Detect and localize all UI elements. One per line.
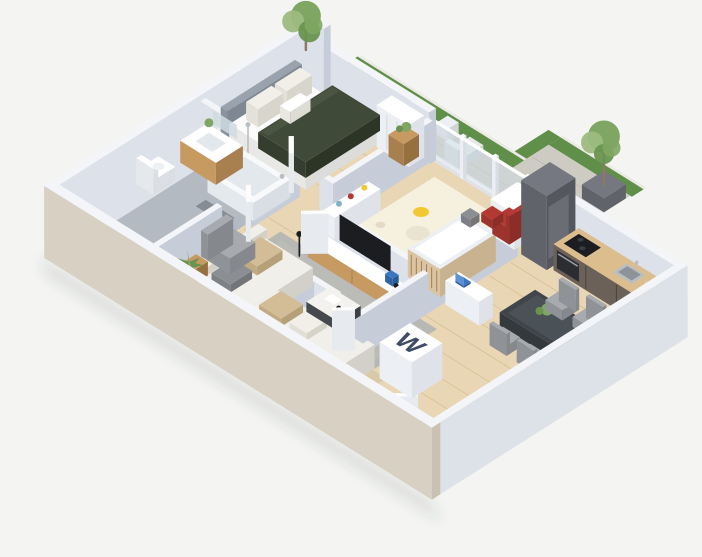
floor-plan-stage: W	[0, 0, 702, 557]
floor-plan-3d-render: W	[0, 0, 702, 557]
bedroom-door	[289, 136, 294, 193]
bathroom-door	[246, 185, 251, 242]
kids-room-door	[301, 211, 328, 254]
wc-door	[332, 307, 355, 351]
